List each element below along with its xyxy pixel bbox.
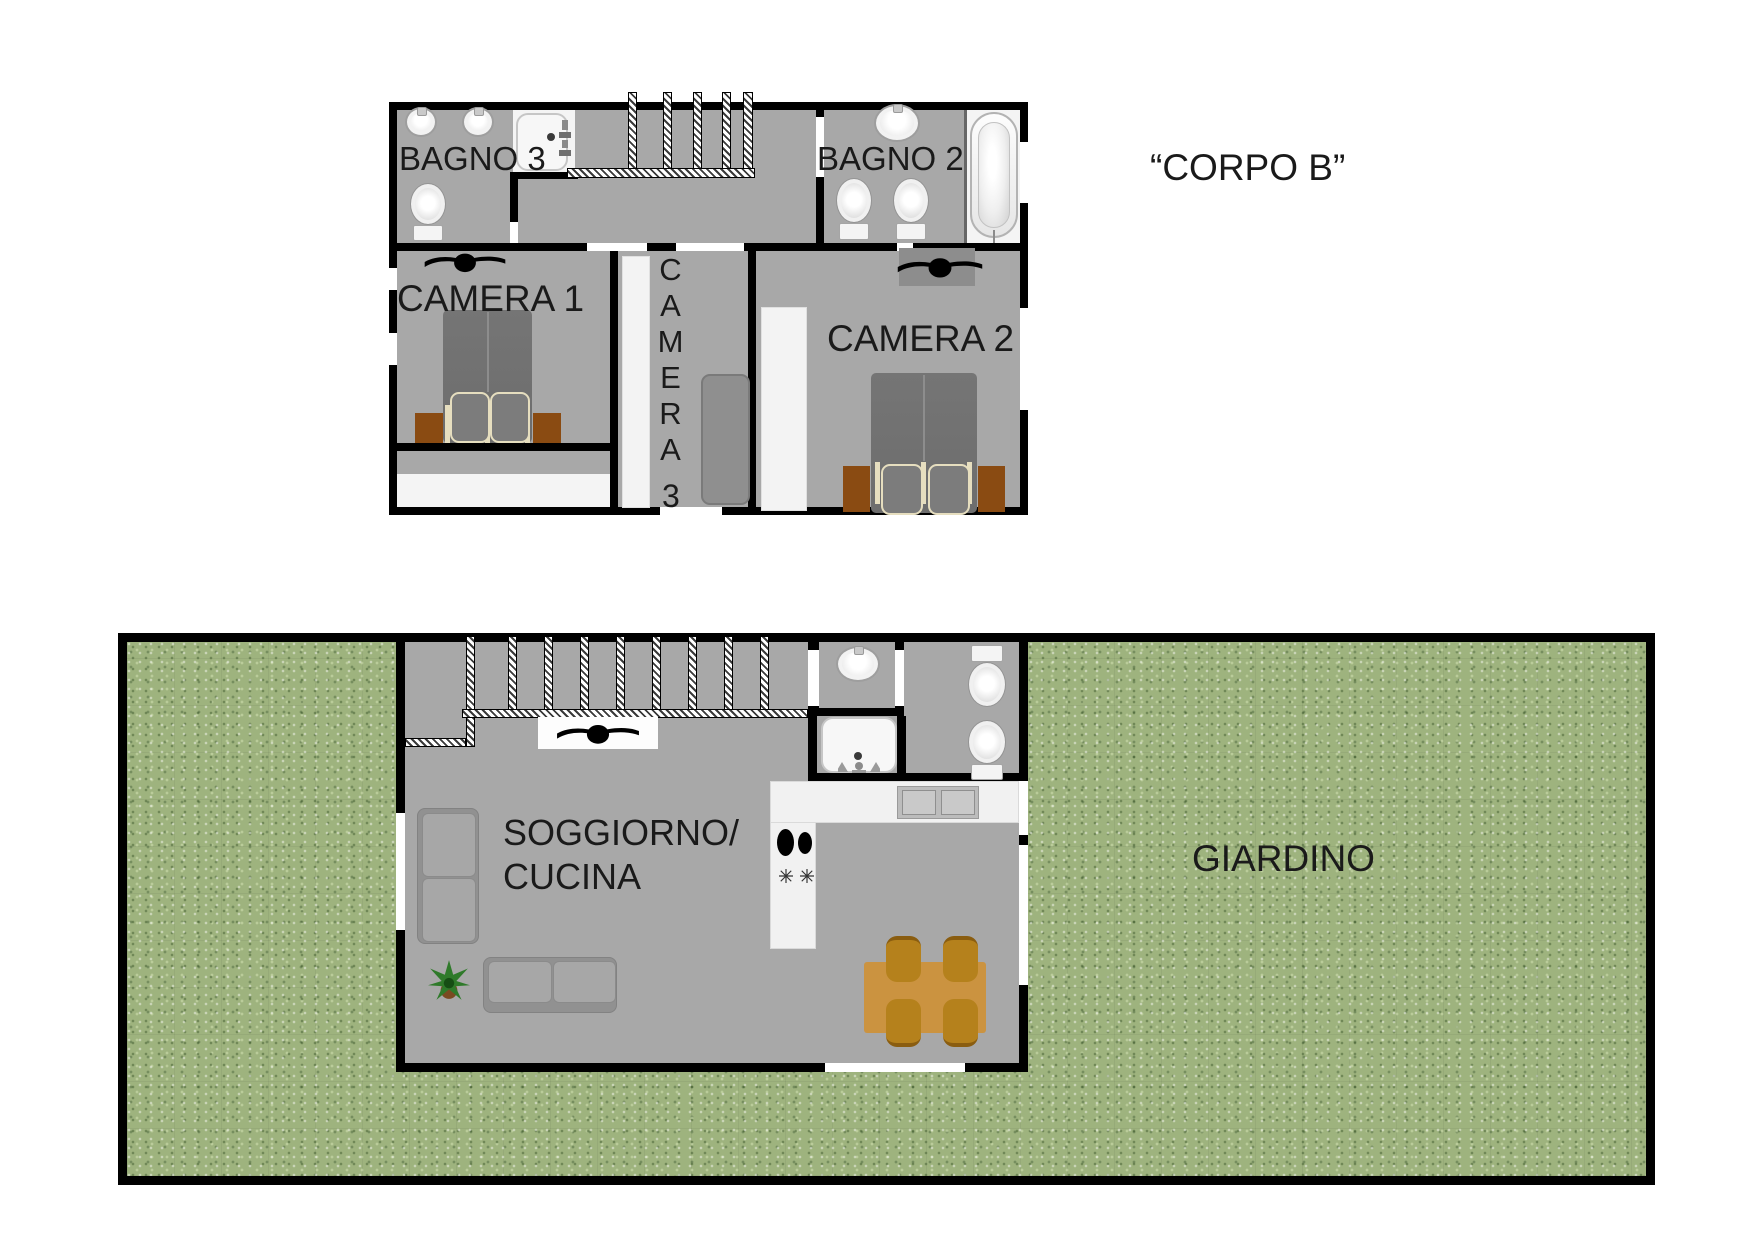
cushion: [422, 813, 476, 877]
staircase-icon: [743, 92, 753, 176]
sofa-icon: [483, 957, 617, 1013]
door-opening: [808, 650, 819, 706]
kitchen-counter: [770, 781, 1019, 823]
wall: [808, 708, 904, 716]
pillow-icon: [881, 464, 923, 515]
sink-icon: [405, 107, 437, 137]
toilet-icon: [411, 183, 445, 241]
shower-tap-icon: [838, 760, 880, 774]
stove-burner-icon: [777, 829, 794, 856]
wall: [897, 716, 906, 781]
wall: [389, 443, 618, 451]
wall: [1646, 633, 1655, 1185]
door-opening: [510, 222, 518, 243]
window-opening: [389, 333, 397, 365]
kitchen-sink-basin: [902, 790, 936, 815]
wall: [964, 110, 967, 243]
balcony-area: [397, 474, 610, 507]
room-label-giardino: GIARDINO: [1192, 838, 1375, 880]
ceiling-fan-icon: [423, 247, 507, 277]
window-opening: [1020, 142, 1028, 203]
shower-drain-icon: [547, 133, 555, 141]
stove-burner-icon: [779, 869, 793, 883]
wall: [389, 102, 397, 515]
window-opening: [1019, 845, 1028, 985]
staircase-icon: [628, 92, 637, 176]
shower-drain-icon: [854, 752, 862, 760]
floor-plan-canvas: BAGNO 3 BAGNO 2 CAMERA 1 CAMERA 2 CAMERA…: [0, 0, 1754, 1241]
staircase-icon: [544, 636, 553, 712]
chair-icon: [943, 936, 978, 982]
staircase-icon: [688, 636, 697, 712]
bathtub-icon: [970, 112, 1018, 238]
room-label-bagno3: BAGNO 3: [399, 140, 546, 178]
cushion: [422, 878, 476, 942]
wall: [118, 633, 127, 1185]
staircase-icon: [722, 92, 731, 176]
kitchen-sink-basin: [941, 790, 975, 815]
pillow-icon: [450, 392, 490, 443]
wall: [808, 716, 817, 781]
plan-title: “CORPO B”: [1150, 147, 1345, 189]
staircase-icon: [567, 168, 755, 178]
sink-icon: [462, 107, 494, 137]
ceiling-fan-icon: [896, 252, 984, 282]
sink-icon: [874, 104, 920, 142]
wardrobe-icon: [622, 256, 650, 508]
armchair-icon: [417, 808, 479, 944]
toilet-icon: [837, 178, 871, 240]
chair-icon: [886, 936, 921, 982]
room-label-camera1: CAMERA 1: [397, 278, 584, 320]
wall: [118, 633, 1655, 642]
staircase-icon: [724, 636, 733, 712]
room-label-bagno2: BAGNO 2: [817, 140, 964, 178]
staircase-icon: [466, 636, 475, 747]
staircase-icon: [693, 92, 702, 176]
staircase-icon: [652, 636, 661, 712]
door-opening: [676, 243, 744, 251]
cushion: [553, 961, 616, 1003]
window-opening: [1020, 308, 1028, 410]
chair-icon: [886, 999, 921, 1047]
room-label-soggiorno-line1: SOGGIORNO/: [503, 812, 739, 854]
staircase-icon: [760, 636, 769, 712]
pillow-icon: [490, 392, 530, 443]
toilet-icon: [969, 720, 1005, 780]
room-label-camera2: CAMERA 2: [827, 318, 1014, 360]
bed-seam: [487, 312, 489, 392]
window-opening: [1019, 781, 1028, 835]
shower-tap-icon: [558, 120, 572, 166]
window-opening: [396, 813, 405, 930]
wall: [118, 1176, 1655, 1185]
window-opening: [825, 1063, 965, 1072]
nightstand-icon: [843, 466, 870, 512]
ceiling-fan-icon: [545, 719, 651, 748]
staircase-icon: [580, 636, 589, 712]
stove-burner-icon: [798, 832, 812, 854]
room-label-soggiorno-line2: CUCINA: [503, 856, 641, 898]
room-label-camera3: CAMERA: [652, 252, 688, 482]
nightstand-icon: [415, 413, 443, 443]
toilet-icon: [894, 178, 928, 240]
room-label-camera3-number: 3: [662, 478, 680, 515]
wall: [610, 251, 618, 515]
plant-icon: [428, 958, 470, 1002]
door-opening: [587, 243, 647, 251]
bathtub-drain-icon: [993, 230, 995, 243]
pillow-icon: [928, 464, 970, 515]
staircase-icon: [616, 636, 625, 712]
window-opening: [389, 268, 397, 290]
chair-icon: [943, 999, 978, 1047]
staircase-icon: [663, 92, 672, 176]
bed-post: [875, 462, 880, 504]
door-opening: [895, 650, 904, 706]
nightstand-icon: [978, 466, 1005, 512]
sink-icon: [836, 646, 880, 682]
toilet-icon: [969, 645, 1005, 707]
wardrobe-icon: [761, 307, 807, 511]
stove-burner-icon: [800, 869, 814, 883]
staircase-icon: [405, 738, 466, 747]
staircase-icon: [508, 636, 517, 712]
single-bed-icon: [701, 374, 750, 505]
bed-seam: [923, 375, 925, 461]
nightstand-icon: [533, 413, 561, 443]
cushion: [488, 961, 552, 1003]
